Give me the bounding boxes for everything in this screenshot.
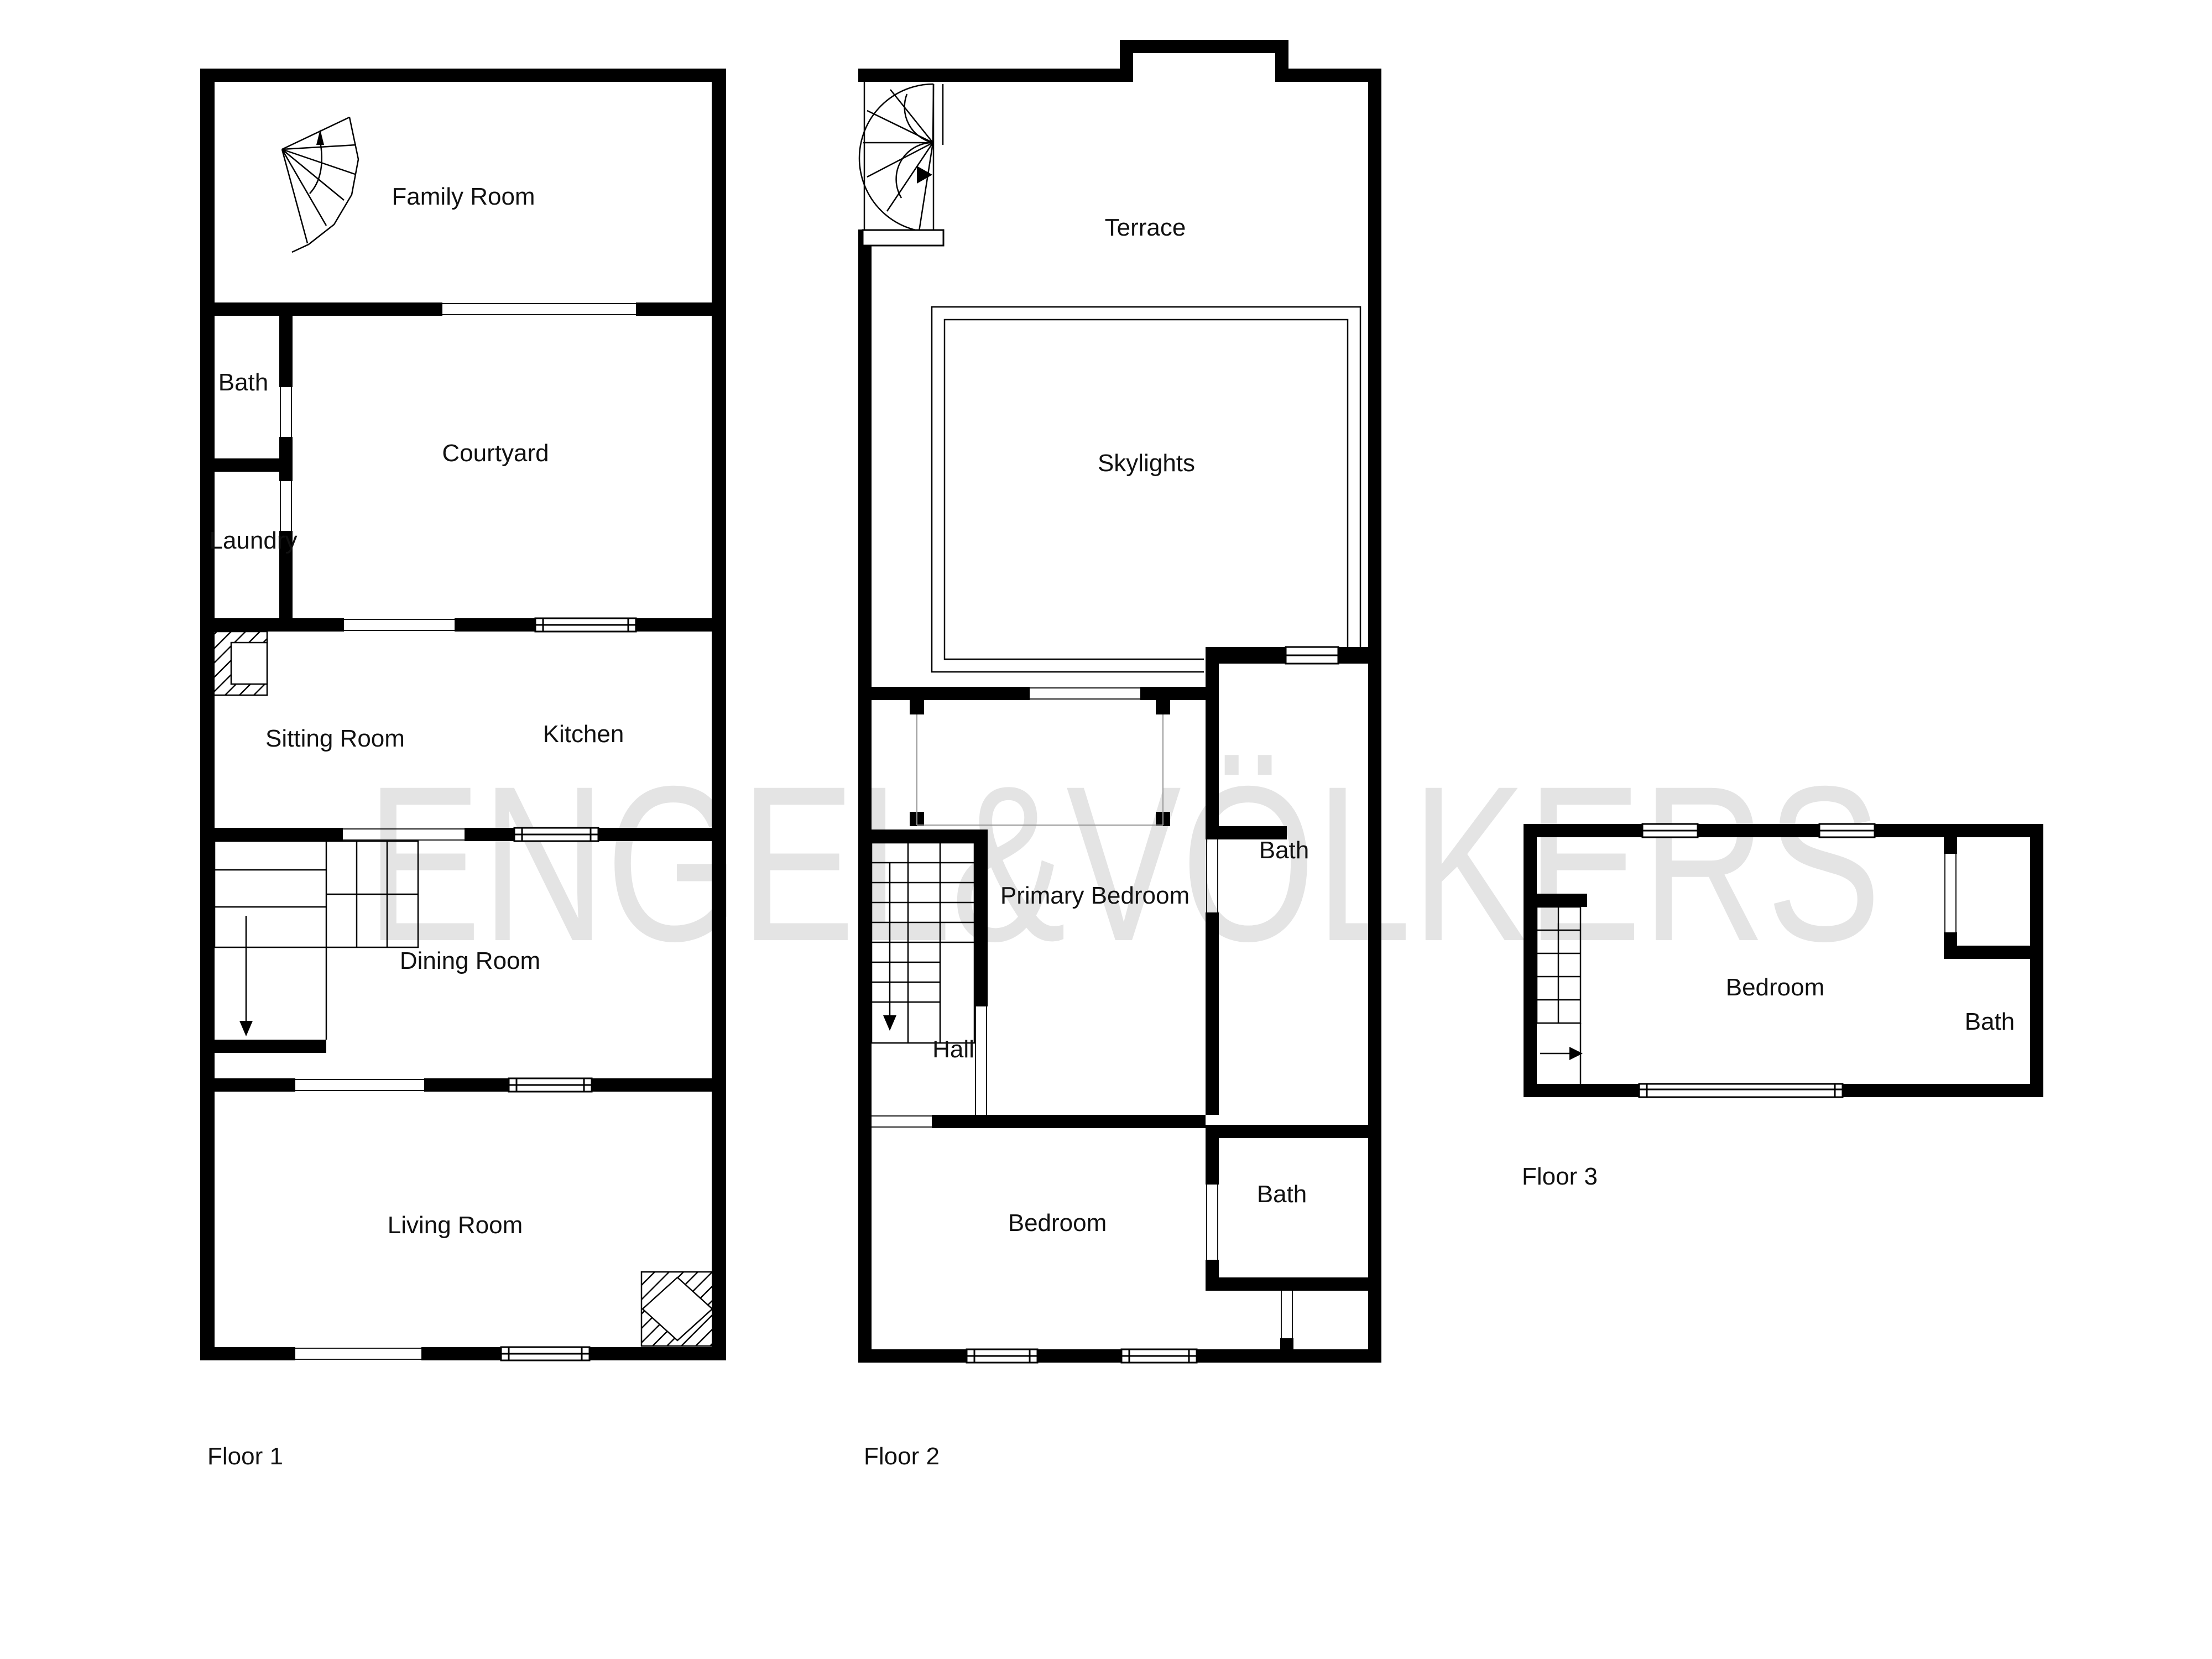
floorplan-page: ENGEL&VÖLKERS [0, 0, 2212, 1659]
wall-segment [200, 69, 726, 82]
stair-landing [863, 230, 943, 246]
window-symbol [1639, 1084, 1843, 1097]
door-opening-symbol [1281, 1291, 1292, 1338]
door-opening-symbol [295, 1079, 424, 1091]
door-opening-symbol [975, 1006, 987, 1115]
door-opening-symbol [295, 1348, 421, 1359]
wall-segment [1206, 1260, 1219, 1277]
door-opening-symbol [872, 1116, 932, 1127]
wall-segment [200, 69, 215, 1360]
wall-segment [421, 1347, 501, 1360]
wall-segment [1368, 69, 1381, 1363]
wall-segment [1206, 647, 1219, 839]
wall-segment [592, 1078, 712, 1092]
room-label-sitting-room: Sitting Room [265, 725, 405, 752]
wall-segment [1140, 687, 1206, 700]
window-symbol [967, 1349, 1037, 1363]
door-opening-symbol [280, 481, 291, 531]
wall-segment [1338, 647, 1381, 664]
floorplan-canvas: ENGEL&VÖLKERS [0, 0, 2212, 1659]
wall-segment [1206, 912, 1219, 1115]
wall-segment [279, 437, 293, 481]
window-symbol [509, 1078, 592, 1092]
window-symbol [535, 618, 636, 632]
room-label-bedroom-floor3: Bedroom [1726, 974, 1825, 1001]
floor-2-caption: Floor 2 [864, 1443, 940, 1470]
wall-segment [712, 69, 726, 1360]
staircase-icon [215, 841, 418, 1040]
wall-segment [424, 1078, 509, 1092]
fireplace-icon [641, 1272, 713, 1346]
room-label-kitchen: Kitchen [543, 721, 624, 748]
wall-segment [200, 1347, 295, 1360]
watermark-text: ENGEL&VÖLKERS [366, 740, 1881, 988]
wall-segment [1524, 824, 2043, 837]
wall-segment [1944, 837, 1957, 854]
wall-segment [1206, 1125, 1381, 1138]
wall-segment [279, 302, 293, 387]
wall-segment [858, 1349, 1381, 1363]
wall-segment [932, 1115, 1206, 1128]
wall-segment [1944, 932, 1957, 946]
wall-segment [1206, 1277, 1381, 1291]
door-opening-symbol [442, 304, 636, 315]
wall-segment [1524, 824, 1537, 1097]
floor-3-door-openings [1945, 854, 1956, 932]
floor-1-outer-walls [200, 69, 726, 1360]
wall-segment [1156, 700, 1170, 714]
floor-1-caption: Floor 1 [207, 1443, 283, 1470]
wall-segment [1120, 40, 1288, 53]
wall-segment [1524, 894, 1587, 907]
room-label-family-room: Family Room [392, 183, 535, 210]
door-opening-symbol [344, 619, 455, 630]
wall-segment [2030, 824, 2043, 1097]
room-label-terrace: Terrace [1105, 214, 1186, 241]
room-label-bath-floor1: Bath [218, 369, 269, 396]
room-label-courtyard: Courtyard [442, 440, 549, 467]
wall-segment [1944, 946, 2043, 959]
skylight-outline [932, 307, 1360, 672]
wall-segment [1120, 53, 1133, 82]
wall-segment [858, 69, 1120, 82]
wall-segment [215, 1078, 295, 1092]
wall-segment [858, 830, 988, 843]
wall-segment [200, 1040, 326, 1053]
door-opening-symbol [1030, 688, 1140, 699]
wall-segment [589, 1347, 726, 1360]
room-label-bath-lower: Bath [1257, 1181, 1307, 1208]
wall-segment [1280, 1338, 1293, 1349]
window-symbol [1642, 824, 1698, 837]
wall-segment [858, 687, 1030, 700]
wall-segment [205, 458, 279, 472]
door-opening-symbol [280, 387, 291, 437]
room-label-skylights: Skylights [1098, 450, 1195, 477]
room-label-bath-upper: Bath [1259, 837, 1310, 864]
room-label-laundry: Laundry [209, 527, 297, 554]
wall-segment [215, 828, 343, 841]
wall-segment [1275, 53, 1288, 82]
spiral-stair-icon [282, 117, 358, 252]
wall-segment [858, 229, 872, 1363]
wall-segment [1206, 1138, 1219, 1185]
room-label-primary-bedroom: Primary Bedroom [1000, 882, 1190, 909]
wall-segment [465, 828, 514, 841]
wall-segment [215, 302, 442, 316]
window-symbol [1121, 1349, 1197, 1363]
wall-segment [910, 700, 924, 714]
fireplace-icon [212, 632, 267, 695]
room-label-bedroom-floor2: Bedroom [1008, 1209, 1107, 1237]
wall-segment [1288, 69, 1381, 82]
wall-segment [598, 828, 712, 841]
wall-segment [215, 618, 344, 632]
floor-3-caption: Floor 3 [1522, 1163, 1598, 1190]
window-symbol [1819, 824, 1875, 837]
door-opening-symbol [1207, 1185, 1218, 1260]
window-symbol [501, 1347, 589, 1360]
wall-segment [636, 302, 712, 316]
window-symbol [1286, 647, 1338, 664]
wall-segment [455, 618, 535, 632]
room-label-living-room: Living Room [388, 1212, 523, 1239]
room-label-dining-room: Dining Room [400, 947, 540, 974]
window-symbol [514, 828, 598, 841]
spiral-stair-icon [859, 84, 943, 246]
door-opening-symbol [1945, 854, 1956, 932]
room-label-hall: Hall [932, 1036, 974, 1063]
wall-segment [974, 830, 988, 1006]
room-label-bath-floor3: Bath [1965, 1008, 2015, 1035]
wall-segment [636, 618, 712, 632]
